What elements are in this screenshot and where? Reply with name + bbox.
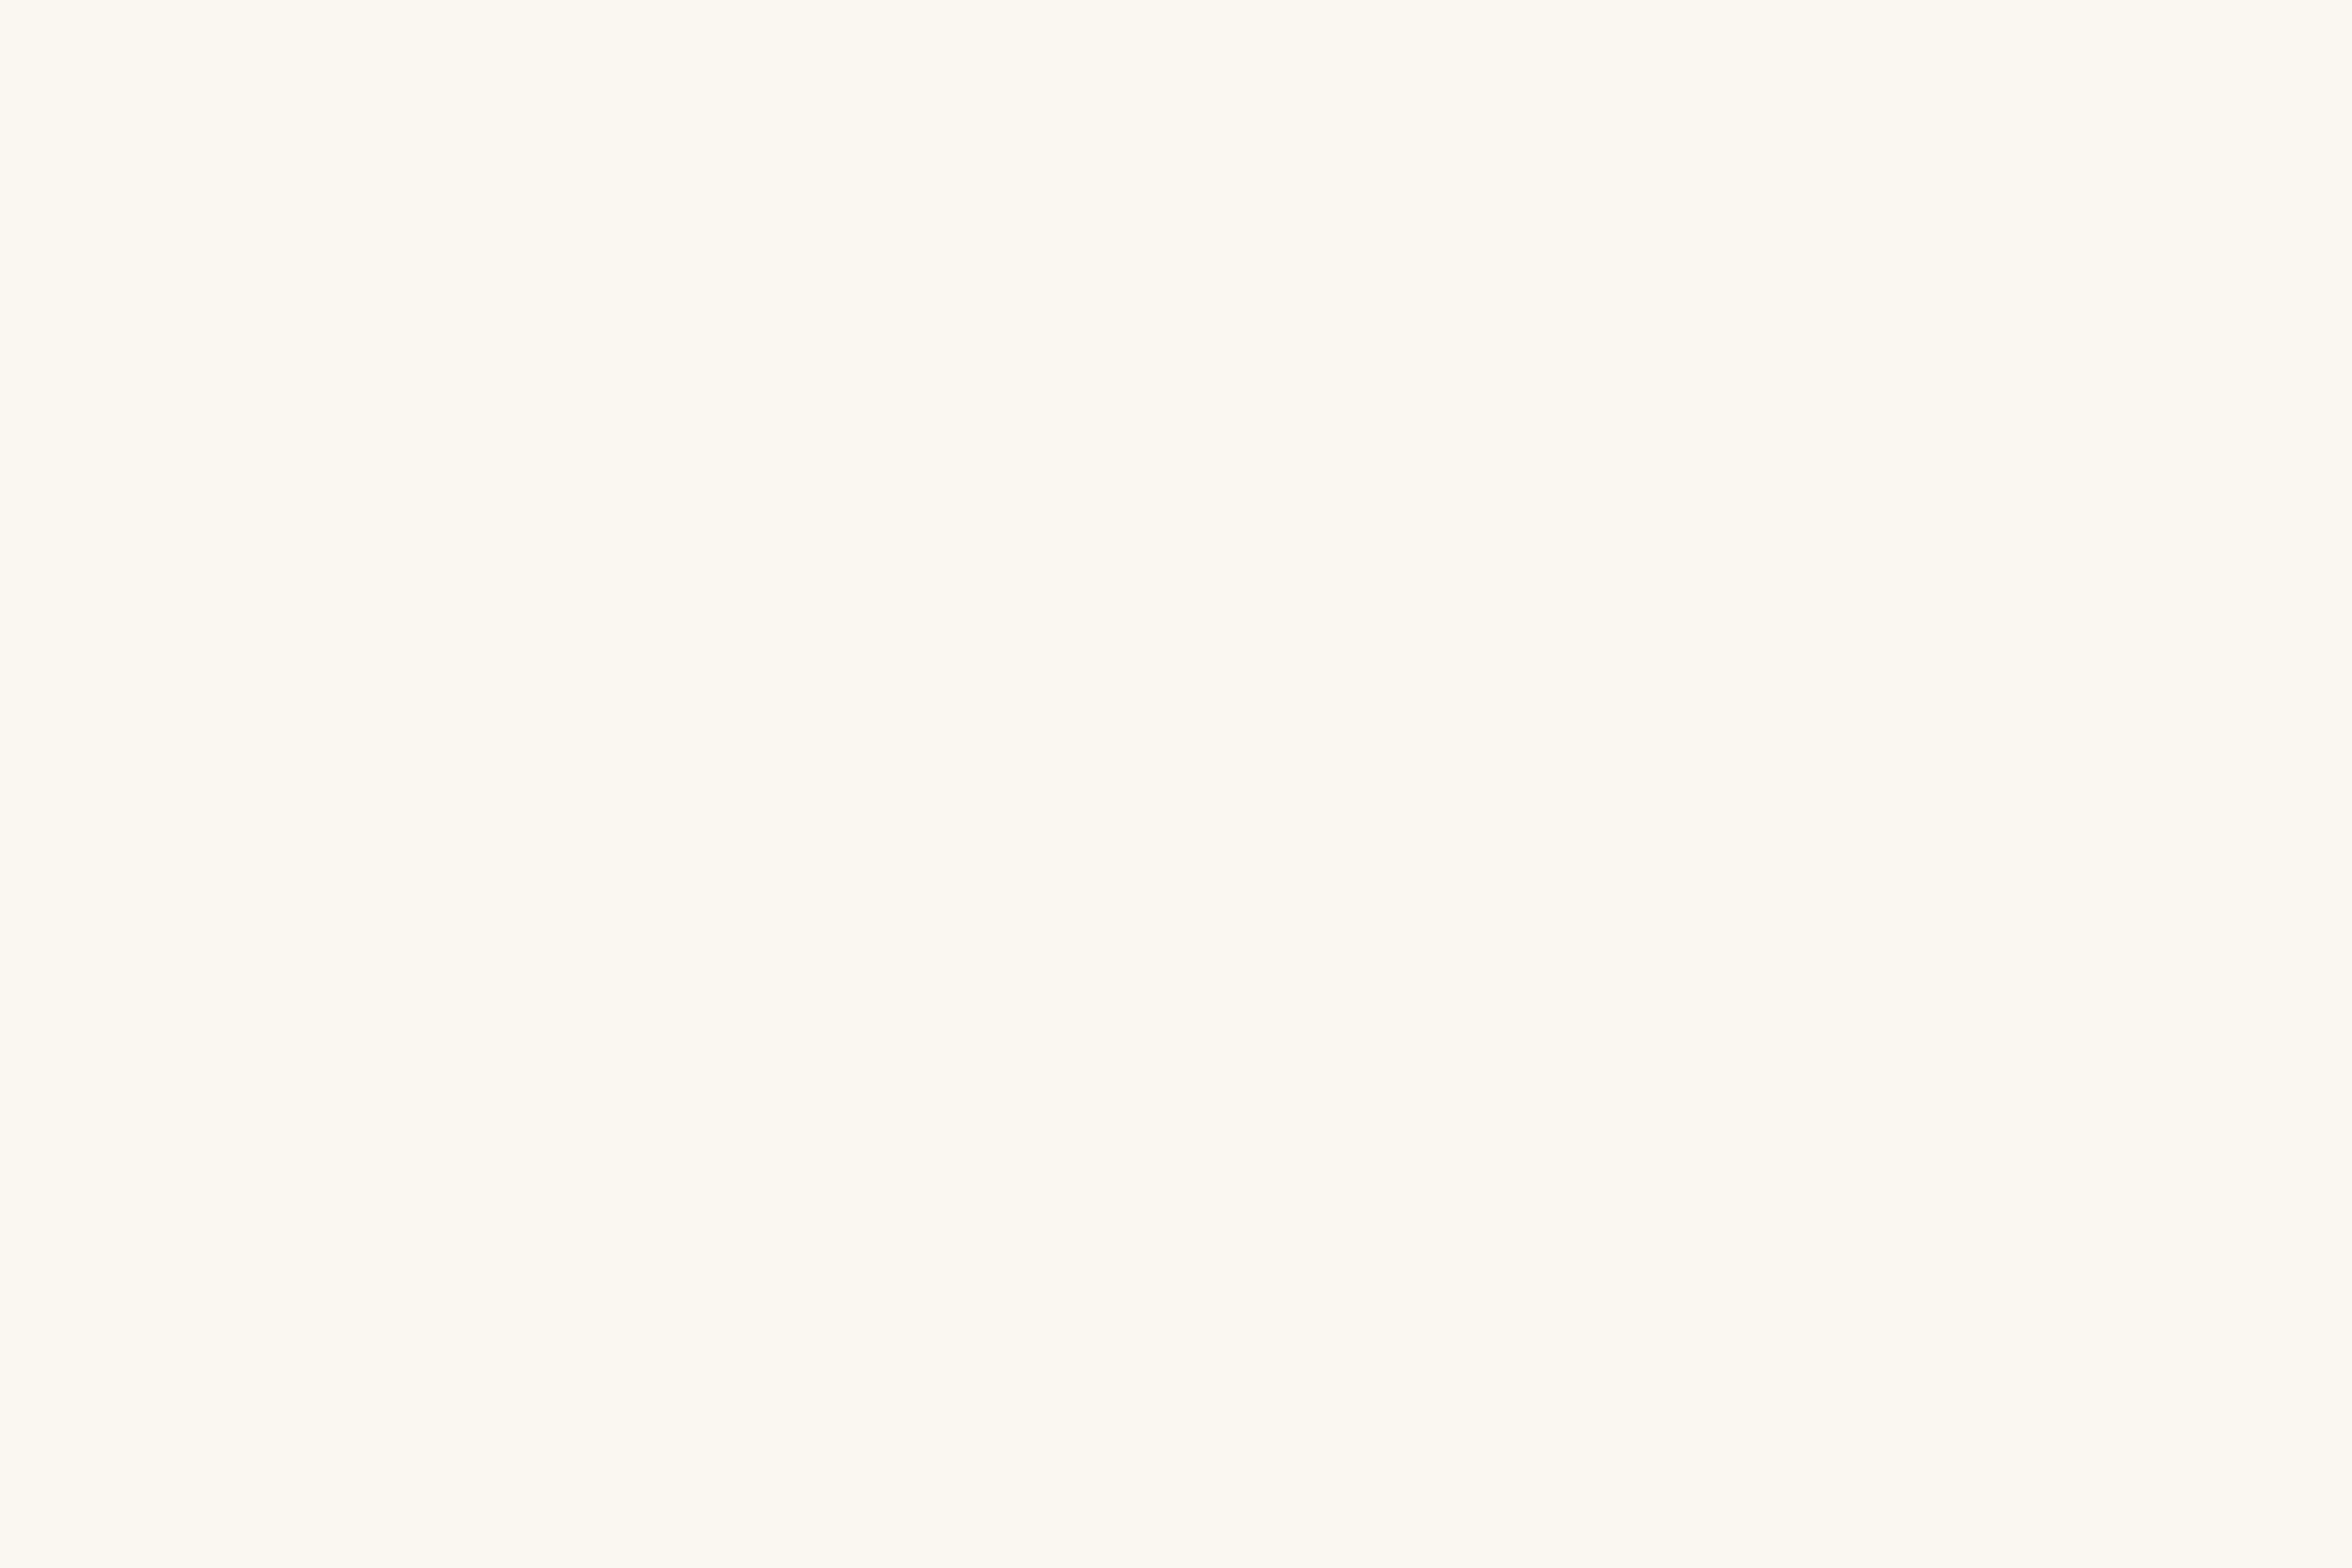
quarry-map-scan bbox=[0, 0, 2352, 1568]
map-canvas bbox=[0, 0, 2352, 1568]
paper-background bbox=[0, 0, 2352, 1568]
